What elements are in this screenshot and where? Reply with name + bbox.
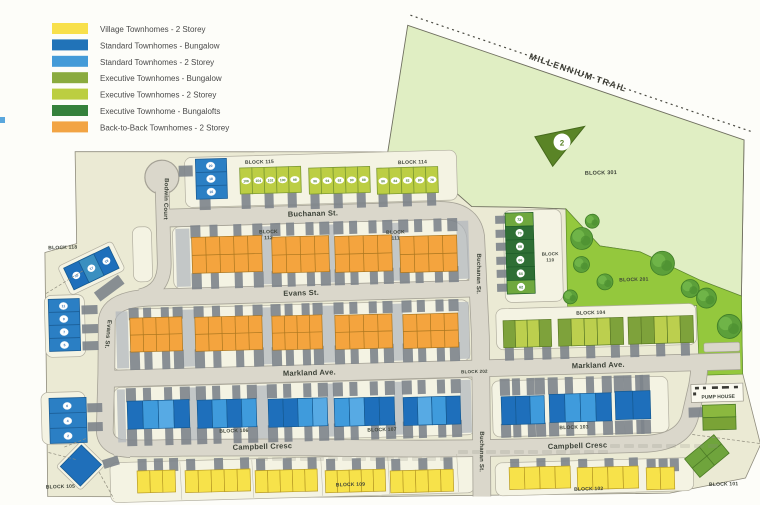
svg-text:BLOCK 105: BLOCK 105	[46, 484, 75, 491]
svg-text:16: 16	[209, 190, 213, 194]
svg-text:Back-to-Back Townhomes - 2 Sto: Back-to-Back Townhomes - 2 Storey	[100, 123, 229, 132]
svg-text:BLOCK 109: BLOCK 109	[336, 482, 365, 489]
svg-text:11: 11	[62, 304, 66, 308]
svg-text:80: 80	[418, 178, 422, 182]
svg-text:Markland Ave.: Markland Ave.	[572, 360, 625, 370]
svg-text:BLOCK 107: BLOCK 107	[367, 427, 396, 434]
svg-text:Campbell Cresc: Campbell Cresc	[233, 441, 293, 452]
svg-text:112: 112	[264, 235, 273, 241]
svg-text:BLOCK 114: BLOCK 114	[398, 159, 427, 166]
svg-text:78: 78	[430, 178, 434, 182]
svg-text:9: 9	[63, 317, 65, 321]
svg-text:BLOCK 118: BLOCK 118	[48, 245, 77, 252]
svg-text:Standard Townhomes - 2 Storey: Standard Townhomes - 2 Storey	[100, 58, 214, 67]
svg-text:4: 4	[67, 419, 69, 423]
svg-text:98: 98	[293, 178, 297, 182]
svg-text:72: 72	[517, 218, 521, 222]
svg-text:70: 70	[518, 231, 522, 235]
svg-text:BLOCK 104: BLOCK 104	[576, 310, 605, 317]
svg-text:Campbell Cresc: Campbell Cresc	[548, 440, 608, 451]
svg-text:Village Townhomes - 2 Storey: Village Townhomes - 2 Storey	[100, 25, 206, 34]
svg-text:BLOCK 301: BLOCK 301	[585, 170, 617, 177]
svg-text:90: 90	[350, 178, 354, 182]
svg-text:106: 106	[243, 179, 249, 183]
svg-text:Bodwin Court: Bodwin Court	[162, 178, 169, 220]
svg-text:110: 110	[546, 257, 554, 262]
svg-text:BLOCK 115: BLOCK 115	[245, 159, 274, 166]
svg-text:PUMP HOUSE: PUMP HOUSE	[701, 394, 735, 401]
svg-text:102: 102	[268, 178, 274, 182]
svg-text:62: 62	[519, 285, 523, 289]
svg-text:Executive Townhomes - 2 Storey: Executive Townhomes - 2 Storey	[100, 91, 216, 100]
svg-text:Executive Townhomes - Bungalow: Executive Townhomes - Bungalow	[100, 74, 222, 83]
svg-text:82: 82	[406, 179, 410, 183]
svg-text:BLOCK 202: BLOCK 202	[461, 369, 488, 375]
svg-text:92: 92	[338, 179, 342, 183]
svg-text:20: 20	[209, 164, 213, 168]
svg-text:88: 88	[362, 178, 366, 182]
svg-text:6: 6	[66, 404, 68, 408]
svg-text:2: 2	[67, 434, 69, 438]
svg-text:Evans St.: Evans St.	[283, 288, 319, 298]
svg-text:Buchanan St.: Buchanan St.	[288, 208, 339, 218]
svg-text:100: 100	[280, 178, 286, 182]
svg-text:18: 18	[209, 177, 213, 181]
svg-text:BLOCK 106: BLOCK 106	[219, 428, 248, 435]
svg-text:111: 111	[391, 236, 400, 242]
svg-text:BLOCK 103: BLOCK 103	[559, 424, 588, 431]
svg-text:Standard Townhomes - Bungalow: Standard Townhomes - Bungalow	[100, 41, 220, 50]
svg-text:104: 104	[255, 179, 261, 183]
svg-text:Markland Ave.: Markland Ave.	[283, 367, 336, 377]
svg-text:84: 84	[393, 179, 397, 183]
svg-text:BLOCK 101: BLOCK 101	[709, 481, 738, 488]
svg-text:68: 68	[518, 245, 522, 249]
svg-text:Executive Townhome - Bungalof: Executive Townhome - Bungalofts	[100, 107, 220, 116]
svg-text:BLOCK: BLOCK	[542, 251, 560, 256]
svg-text:BLOCK 102: BLOCK 102	[574, 486, 603, 493]
svg-text:66: 66	[518, 258, 522, 262]
svg-text:BLOCK 201: BLOCK 201	[619, 277, 648, 284]
svg-text:96: 96	[313, 179, 317, 183]
svg-text:5: 5	[64, 343, 66, 347]
svg-text:2: 2	[560, 138, 565, 147]
svg-text:86: 86	[381, 179, 385, 183]
svg-text:94: 94	[325, 179, 329, 183]
svg-text:7: 7	[63, 330, 65, 334]
svg-text:64: 64	[519, 272, 523, 276]
svg-text:Buchanan St.: Buchanan St.	[475, 253, 481, 294]
